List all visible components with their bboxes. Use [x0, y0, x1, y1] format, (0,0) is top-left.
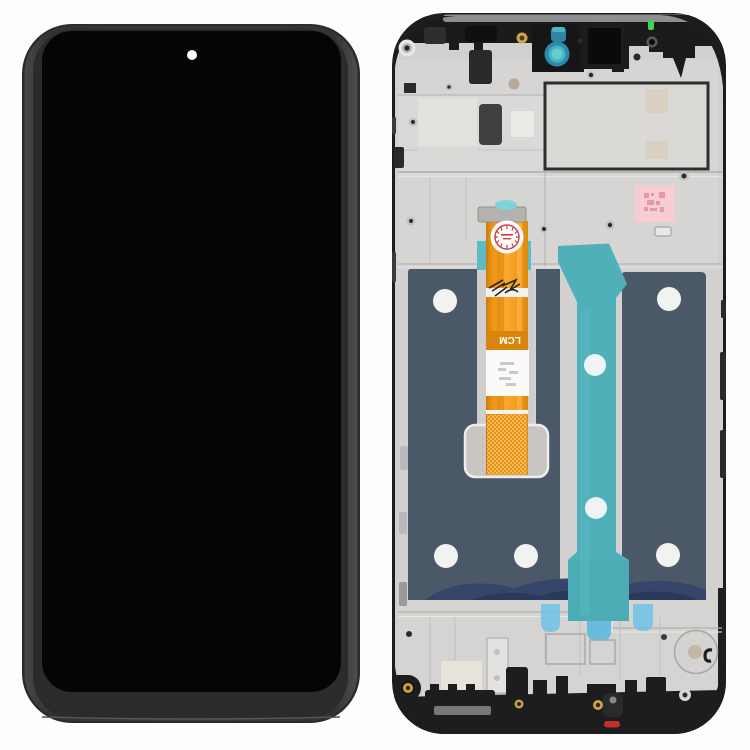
- svg-text:LCM: LCM: [499, 334, 521, 345]
